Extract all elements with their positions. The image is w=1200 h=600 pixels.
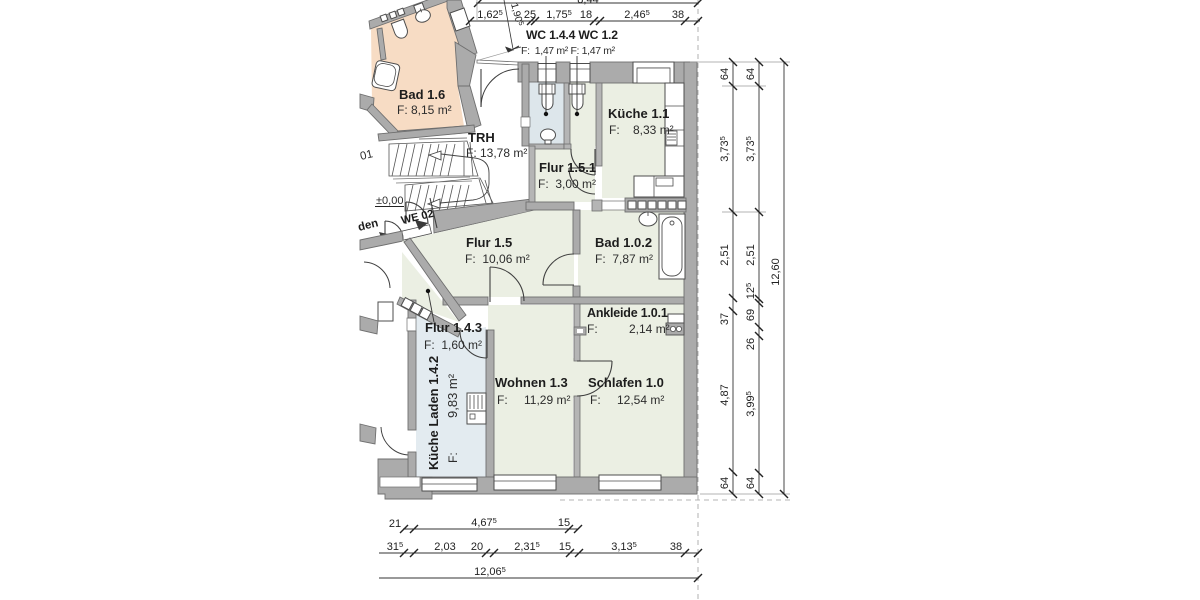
svg-text:Flur 1.5.1: Flur 1.5.1: [539, 160, 596, 175]
svg-text:TRH: TRH: [468, 130, 495, 145]
svg-text:F: 10,06 m²: F: 10,06 m²: [465, 252, 530, 266]
svg-text:64: 64: [719, 477, 731, 489]
svg-text:Wohnen 1.3: Wohnen 1.3: [495, 375, 568, 390]
svg-text:F: 7,87 m²: F: 7,87 m²: [595, 252, 653, 266]
svg-text:69: 69: [745, 309, 757, 321]
svg-text:38: 38: [672, 9, 684, 21]
svg-text:F: 1,47 m² F: 1,47 m²: F: 1,47 m² F: 1,47 m²: [521, 45, 616, 57]
svg-text:38: 38: [670, 541, 682, 553]
svg-text:F:: F:: [446, 452, 460, 463]
svg-text:64: 64: [745, 477, 757, 489]
svg-text:WC 1.4.4 WC 1.2: WC 1.4.4 WC 1.2: [526, 28, 618, 42]
svg-text:26: 26: [745, 338, 757, 350]
svg-text:F: 8,33 m²: F: 8,33 m²: [609, 123, 674, 137]
svg-text:2,14 m²: 2,14 m²: [629, 322, 670, 336]
svg-text:20: 20: [471, 541, 483, 553]
svg-text:Schlafen 1.0: Schlafen 1.0: [588, 375, 664, 390]
svg-text:21: 21: [389, 518, 401, 530]
svg-text:F:: F:: [497, 393, 508, 407]
svg-text:15: 15: [559, 541, 571, 553]
svg-text:F: 1,60 m²: F: 1,60 m²: [424, 338, 482, 352]
svg-text:2,51: 2,51: [745, 244, 757, 265]
svg-text:F: 3,00 m²: F: 3,00 m²: [538, 177, 596, 191]
svg-text:Flur 1.5: Flur 1.5: [466, 235, 512, 250]
svg-text:37: 37: [719, 313, 731, 325]
svg-text:18: 18: [580, 9, 592, 21]
svg-text:Ankleide 1.0.1: Ankleide 1.0.1: [587, 306, 668, 320]
svg-text:2,03: 2,03: [434, 541, 455, 553]
svg-text:8,44: 8,44: [577, 0, 598, 6]
svg-text:F: 13,78 m²: F: 13,78 m²: [466, 146, 527, 160]
svg-text:F:: F:: [587, 322, 598, 336]
svg-text:F: 8,15 m²: F: 8,15 m²: [397, 103, 452, 117]
svg-text:25: 25: [524, 9, 536, 21]
svg-text:12,065: 12,065: [474, 565, 506, 578]
svg-text:±0,00: ±0,00: [376, 195, 403, 207]
svg-text:11,29 m²: 11,29 m²: [524, 393, 570, 407]
svg-text:Flur 1.4.3: Flur 1.4.3: [425, 320, 482, 335]
svg-text:Küche Laden 1.4.2: Küche Laden 1.4.2: [426, 356, 441, 470]
svg-text:64: 64: [719, 68, 731, 80]
svg-text:Bad 1.6: Bad 1.6: [399, 87, 445, 102]
svg-text:Küche 1.1: Küche 1.1: [608, 106, 669, 121]
svg-text:64: 64: [745, 68, 757, 80]
svg-text:12,60: 12,60: [770, 258, 782, 286]
svg-text:9,83 m²: 9,83 m²: [445, 373, 460, 418]
svg-text:2,51: 2,51: [719, 244, 731, 265]
svg-text:F:: F:: [590, 393, 601, 407]
svg-text:Bad 1.0.2: Bad 1.0.2: [595, 235, 652, 250]
svg-text:15: 15: [558, 517, 570, 529]
svg-text:4,87: 4,87: [719, 384, 731, 405]
svg-text:12,54 m²: 12,54 m²: [617, 393, 664, 407]
